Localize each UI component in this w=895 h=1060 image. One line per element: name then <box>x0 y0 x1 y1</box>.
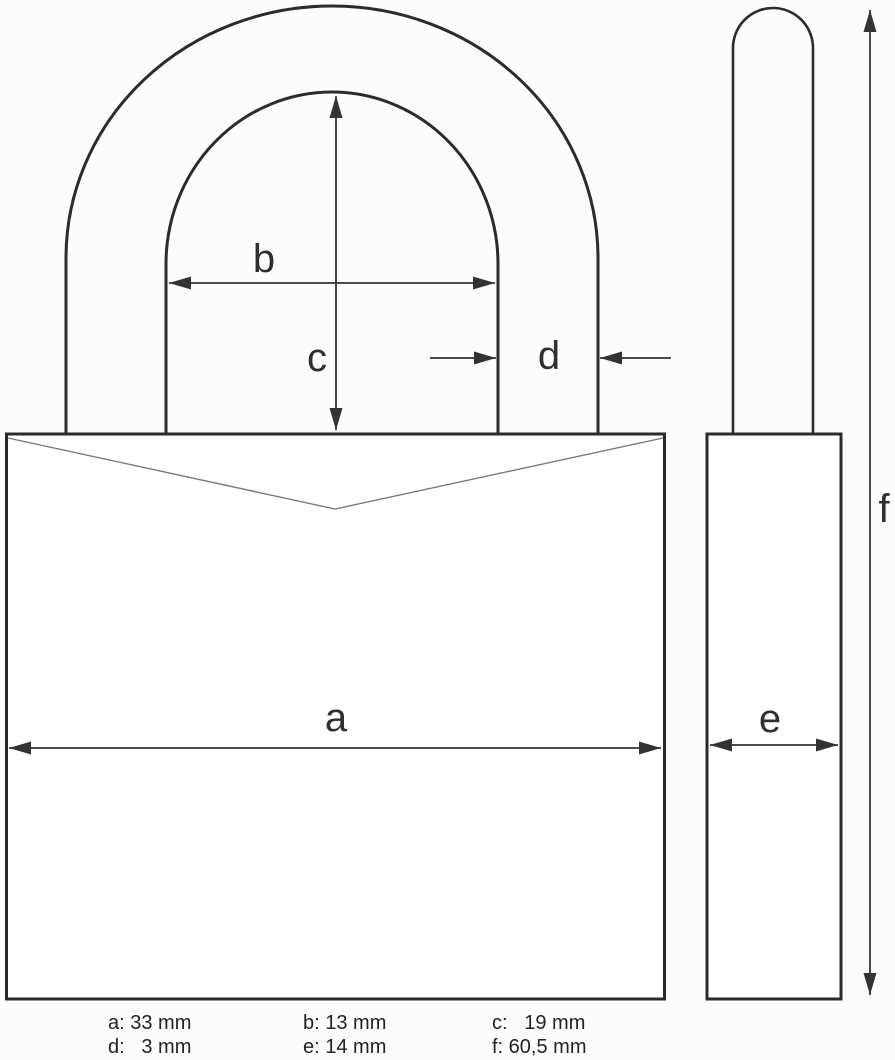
legend-item-b: b: 13 mm <box>303 1011 386 1035</box>
front-shackle-inner <box>166 92 498 434</box>
dim-f-label: f <box>878 487 890 531</box>
legend-item-a: a: 33 mm <box>108 1011 191 1035</box>
dim-a-label: a <box>325 696 348 740</box>
dim-e-label: e <box>759 697 781 741</box>
side-shackle <box>733 8 813 434</box>
legend-item-c: c: 19 mm <box>492 1011 585 1035</box>
legend-item-e: e: 14 mm <box>303 1035 386 1059</box>
dim-d-label: d <box>538 334 560 378</box>
dim-c-label: c <box>307 336 327 380</box>
legend: a: 33 mm b: 13 mm c: 19 mm d: 3 mm e: 14… <box>0 1004 895 1060</box>
front-view: b c d a <box>7 6 672 999</box>
dimension-f: f <box>870 10 890 995</box>
side-view: e f <box>707 8 890 999</box>
padlock-dimension-diagram: b c d a <box>0 0 895 1060</box>
dimension-b: b <box>169 237 495 283</box>
legend-item-d: d: 3 mm <box>108 1035 191 1059</box>
dimension-c: c <box>307 96 336 430</box>
dim-b-label: b <box>253 237 275 281</box>
front-shackle-outer <box>66 6 598 434</box>
legend-item-f: f: 60,5 mm <box>492 1035 586 1059</box>
diagram-canvas: b c d a <box>0 0 895 1060</box>
dimension-d: d <box>430 334 671 378</box>
